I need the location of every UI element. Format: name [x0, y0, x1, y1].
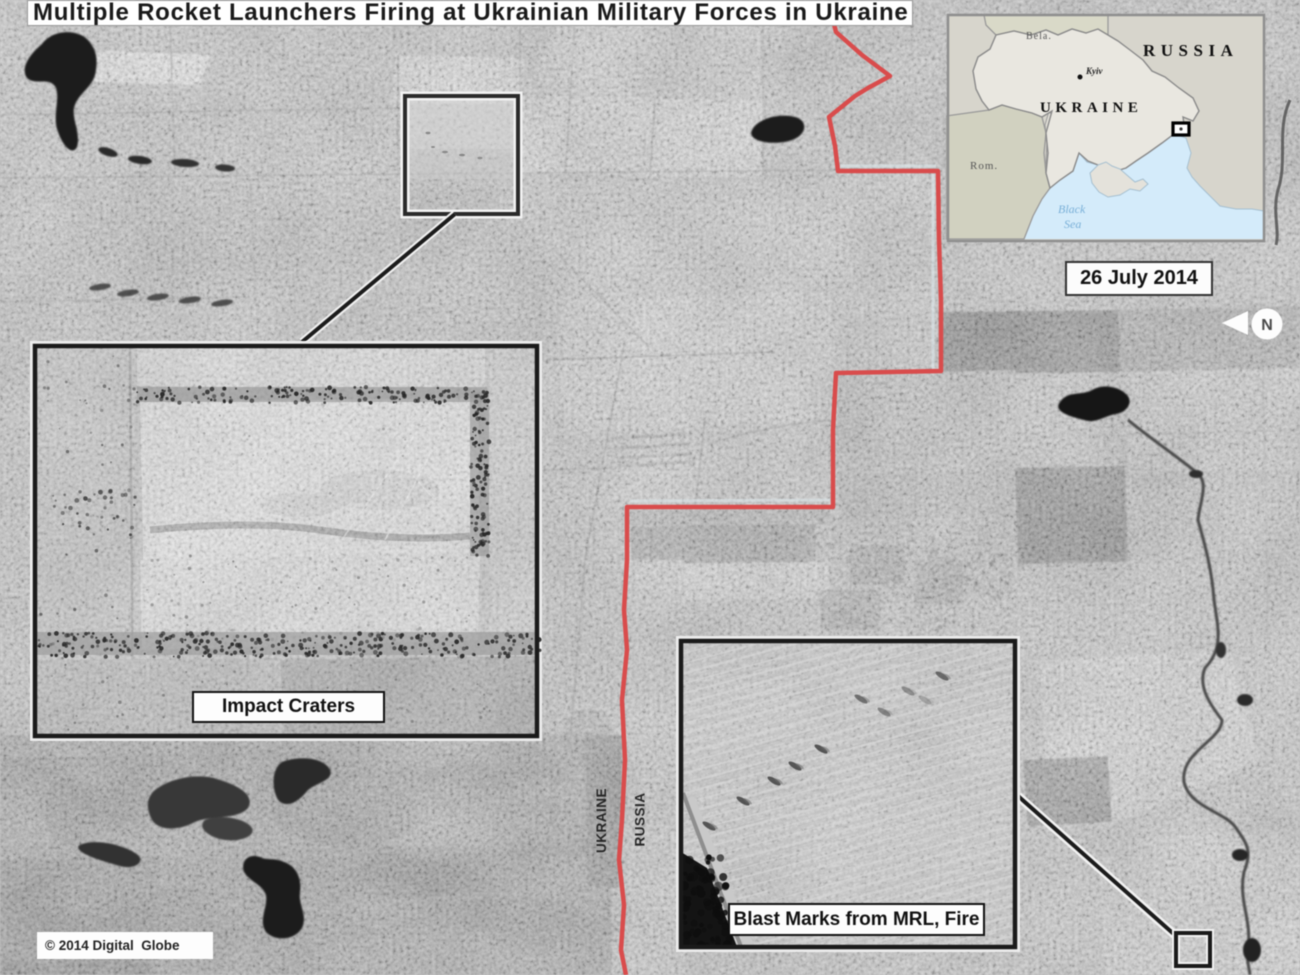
svg-text:Bela.: Bela.	[1026, 31, 1052, 42]
svg-text:Sea: Sea	[1064, 217, 1081, 231]
svg-text:Kyiv: Kyiv	[1085, 66, 1103, 76]
svg-text:N: N	[1261, 317, 1273, 334]
svg-text:UKRAINE: UKRAINE	[1040, 100, 1142, 116]
svg-text:Rom.: Rom.	[970, 160, 998, 172]
svg-text:RUSSIA: RUSSIA	[1143, 41, 1238, 60]
svg-text:Black: Black	[1058, 202, 1086, 216]
